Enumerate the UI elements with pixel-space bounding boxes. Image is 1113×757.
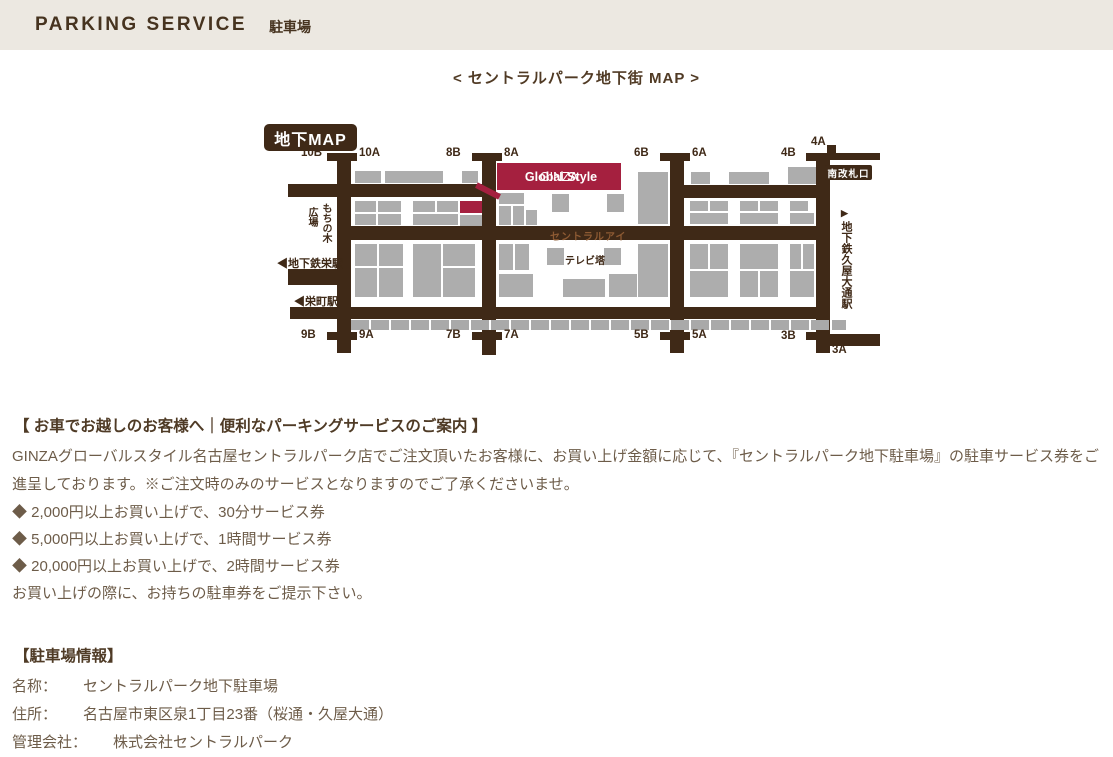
parking-service-section: 【 お車でお越しのお客様へ｜便利なパーキングサービスのご案内 】 GINZAグロ… <box>0 414 1113 757</box>
sakae-subway-station-label: ◀地下鉄栄駅 <box>277 255 343 271</box>
page-title: PARKING SERVICE <box>35 14 247 36</box>
info-label: 名称： <box>12 678 57 695</box>
service-description: GINZAグローバルスタイル名古屋セントラルパーク店でご注文頂いたお客様に、お買… <box>12 443 1101 499</box>
south-gate-label: 南改札口 <box>825 165 872 180</box>
info-label: 管理会社： <box>12 734 87 751</box>
exit-label-6B: 6B <box>634 147 649 159</box>
hiroba-label: 広場 <box>304 207 319 227</box>
exit-label-3A: 3A <box>832 344 847 356</box>
exit-label-9A: 9A <box>359 329 374 341</box>
info-value: 株式会社セントラルパーク <box>113 734 293 751</box>
exit-label-4A: 4A <box>811 136 826 148</box>
exit-label-3B: 3B <box>781 330 796 342</box>
sakaemachi-station-label: ◀栄町駅 <box>294 293 338 309</box>
info-row-address: 住所：名古屋市東区泉1丁目23番（桜通・久屋大通） <box>12 701 1101 729</box>
exit-label-6A: 6A <box>692 147 707 159</box>
info-row-company: 管理会社：株式会社セントラルパーク <box>12 729 1101 757</box>
service-note: お買い上げの際に、お持ちの駐車券をご提示下さい。 <box>12 580 1101 607</box>
service-tiers: ◆ 2,000円以上お買い上げで、30分サービス券 ◆ 5,000円以上お買い上… <box>12 499 1101 607</box>
central-eye-label: セントラルアイ <box>550 228 627 243</box>
service-tier-1h: ◆ 5,000円以上お買い上げで、1時間サービス券 <box>12 526 1101 553</box>
service-tier-30min: ◆ 2,000円以上お買い上げで、30分サービス券 <box>12 499 1101 526</box>
exit-label-5B: 5B <box>634 329 649 341</box>
underground-map: 10B10A8B8A6B6A4B4A9B9A7B7A5B5A3B3A GINZA… <box>263 117 883 365</box>
exit-label-8A: 8A <box>504 147 519 159</box>
info-row-name: 名称：セントラルパーク地下駐車場 <box>12 673 1101 701</box>
service-heading: 【 お車でお越しのお客様へ｜便利なパーキングサービスのご案内 】 <box>14 414 1101 436</box>
info-label: 住所： <box>12 706 57 723</box>
hisaya-odori-station-label: 地下鉄久屋大通駅 <box>838 221 854 309</box>
ginza-store-banner: GINZA Global Style <box>497 163 621 190</box>
tv-tower-label: テレビ塔 <box>565 252 605 267</box>
info-value: 名古屋市東区泉1丁目23番（桜通・久屋大通） <box>83 706 393 723</box>
exit-label-7B: 7B <box>446 329 461 341</box>
page-subtitle: 駐車場 <box>269 17 311 37</box>
banner-name: Global Style <box>525 170 597 184</box>
parking-info-heading: 【駐車場情報】 <box>14 644 1101 666</box>
map-title: < セントラルパーク地下街 MAP > <box>0 67 1113 88</box>
hisaya-odori-arrow-icon: ▶ <box>841 208 848 219</box>
exit-label-8B: 8B <box>446 147 461 159</box>
exit-label-5A: 5A <box>692 329 707 341</box>
parking-info-section: 【駐車場情報】 名称：セントラルパーク地下駐車場 住所：名古屋市東区泉1丁目23… <box>12 644 1101 757</box>
underground-map-badge: 地下MAP <box>264 124 357 151</box>
service-tier-2h: ◆ 20,000円以上お買い上げで、2時間サービス券 <box>12 553 1101 580</box>
exit-label-4B: 4B <box>781 147 796 159</box>
exit-label-10A: 10A <box>359 147 380 159</box>
parking-info-rows: 名称：セントラルパーク地下駐車場 住所：名古屋市東区泉1丁目23番（桜通・久屋大… <box>12 673 1101 757</box>
page-header: PARKING SERVICE 駐車場 <box>0 0 1113 50</box>
exit-label-9B: 9B <box>301 329 316 341</box>
ginza-store-location <box>460 201 482 213</box>
info-value: セントラルパーク地下駐車場 <box>83 678 278 695</box>
exit-label-7A: 7A <box>504 329 519 341</box>
mochinoki-label: もちの木 <box>318 203 333 243</box>
